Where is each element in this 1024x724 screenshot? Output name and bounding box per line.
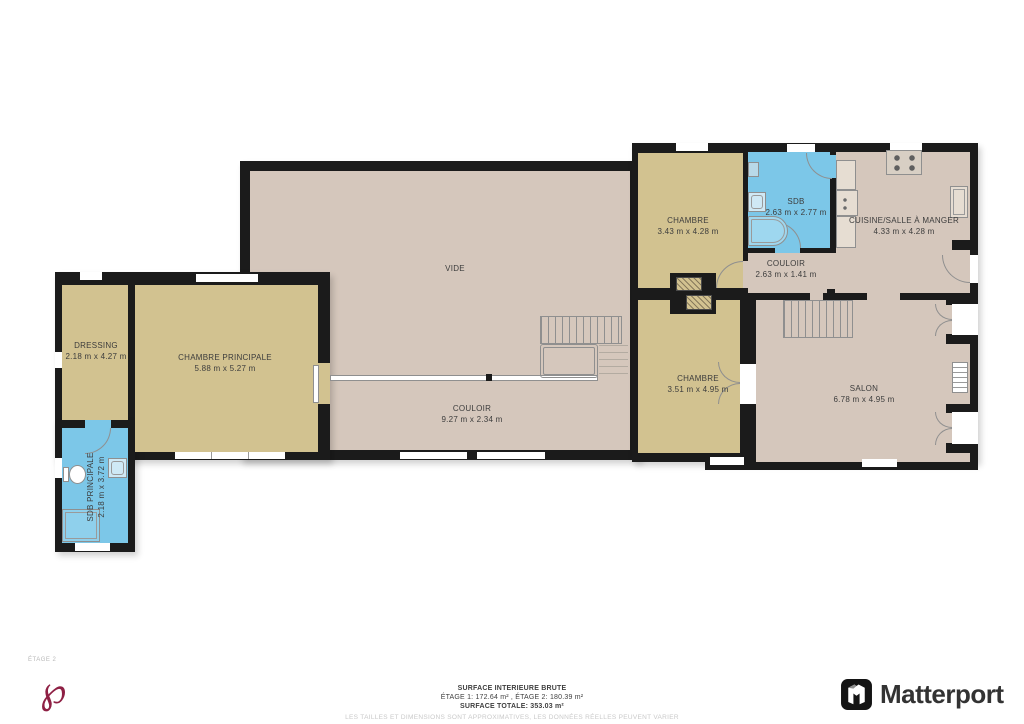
room-dims: 5.88 m x 5.27 m [178, 363, 272, 374]
room-label-chambre-principale: CHAMBRE PRINCIPALE 5.88 m x 5.27 m [178, 352, 272, 374]
agency-monogram-logo: ℘ [40, 668, 67, 712]
door-opening [85, 420, 111, 428]
room-name: SALON [833, 383, 894, 394]
window [477, 452, 545, 459]
stairs-lower-run [599, 345, 628, 377]
toilet-bowl-icon [69, 465, 86, 484]
room-dims: 6.78 m x 4.95 m [833, 394, 894, 405]
matterport-logo: Matterport [840, 678, 1004, 711]
sink-icon [108, 458, 127, 478]
room-label-sdb-principale: SDB PRINCIPALE 2.18 m x 3.72 m [85, 452, 107, 521]
room-dims: 2.18 m x 3.72 m [96, 452, 107, 521]
surface-summary: SURFACE INTERIEURE BRUTE ÉTAGE 1: 172.64… [345, 684, 679, 722]
door-opening-exterior [952, 304, 978, 335]
window [196, 274, 258, 282]
kitchen-counter-icon [836, 160, 856, 190]
room-name: DRESSING [65, 340, 126, 351]
fridge-icon [950, 186, 968, 218]
room-label-cuisine: CUISINE/SALLE À MANGER 4.33 m x 4.28 m [849, 215, 959, 237]
room-name: SDB [765, 196, 826, 207]
surface-title: SURFACE INTERIEURE BRUTE [345, 684, 679, 693]
stairs-upper-run [540, 316, 622, 344]
room-label-chambre-haut: CHAMBRE 3.43 m x 4.28 m [657, 215, 718, 237]
room-name: COULOIR [441, 403, 502, 414]
utility-box-icon [748, 162, 759, 177]
bathtub-icon [748, 216, 788, 246]
room-name: CHAMBRE [667, 373, 728, 384]
room-name: SDB PRINCIPALE [85, 452, 96, 521]
radiator-icon [952, 362, 968, 393]
room-name: CHAMBRE PRINCIPALE [178, 352, 272, 363]
stove-icon [886, 150, 922, 175]
room-dims: 2.63 m x 1.41 m [755, 269, 816, 280]
window-band [175, 452, 285, 459]
room-label-chambre-bas: CHAMBRE 3.51 m x 4.95 m [667, 373, 728, 395]
room-label-couloir: COULOIR 9.27 m x 2.34 m [441, 403, 502, 425]
door-opening-exterior [970, 255, 978, 283]
room-dims: 2.18 m x 4.27 m [65, 351, 126, 362]
room-dims: 2.63 m x 2.77 m [765, 207, 826, 218]
window [55, 458, 62, 478]
kitchen-sink-icon [836, 190, 858, 216]
room-name: VIDE [445, 263, 465, 274]
room-label-vide: VIDE [445, 263, 465, 274]
passage-opening [867, 293, 900, 300]
door-leaf [313, 365, 319, 403]
window [400, 452, 467, 459]
window [787, 144, 815, 152]
room-name: CHAMBRE [657, 215, 718, 226]
surface-floors: ÉTAGE 1: 172.64 m² , ÉTAGE 2: 180.39 m² [345, 693, 679, 702]
window [80, 272, 102, 280]
room-dims: 4.33 m x 4.28 m [849, 226, 959, 237]
door-opening [318, 363, 330, 404]
wall-stub [952, 240, 970, 250]
room-label-salon: SALON 6.78 m x 4.95 m [833, 383, 894, 405]
sink-icon [748, 192, 766, 212]
window [676, 143, 708, 151]
fireplace-hatch [676, 277, 702, 291]
room-label-dressing: DRESSING 2.18 m x 4.27 m [65, 340, 126, 362]
room-label-sdb: SDB 2.63 m x 2.77 m [765, 196, 826, 218]
floor-level-label: ÉTAGE 2 [28, 657, 56, 663]
door-opening [743, 261, 748, 288]
surface-disclaimer: LES TAILLES ET DIMENSIONS SONT APPROXIMA… [345, 713, 679, 722]
window [710, 457, 744, 465]
room-name: COULOIR [755, 258, 816, 269]
passage-opening [810, 293, 823, 300]
railing-post [486, 374, 492, 381]
door-opening-exterior [952, 412, 978, 444]
stairs-landing-railing [540, 344, 598, 378]
matterport-wordmark: Matterport [880, 679, 1004, 710]
room-dims: 3.43 m x 4.28 m [657, 226, 718, 237]
door-recess [740, 364, 756, 404]
wall-tick [827, 289, 835, 294]
stairs-salon [783, 300, 853, 338]
room-name: CUISINE/SALLE À MANGER [849, 215, 959, 226]
floor-plan-canvas: DRESSING 2.18 m x 4.27 m CHAMBRE PRINCIP… [0, 0, 1024, 724]
room-dims: 3.51 m x 4.95 m [667, 384, 728, 395]
matterport-icon [840, 678, 873, 711]
fireplace-hatch [686, 295, 712, 310]
room-dims: 9.27 m x 2.34 m [441, 414, 502, 425]
room-label-couloir-2: COULOIR 2.63 m x 1.41 m [755, 258, 816, 280]
window [862, 459, 897, 467]
window [55, 352, 62, 368]
window [75, 543, 110, 551]
surface-total: SURFACE TOTALE: 353.03 m² [345, 702, 679, 711]
door-opening [775, 248, 800, 253]
